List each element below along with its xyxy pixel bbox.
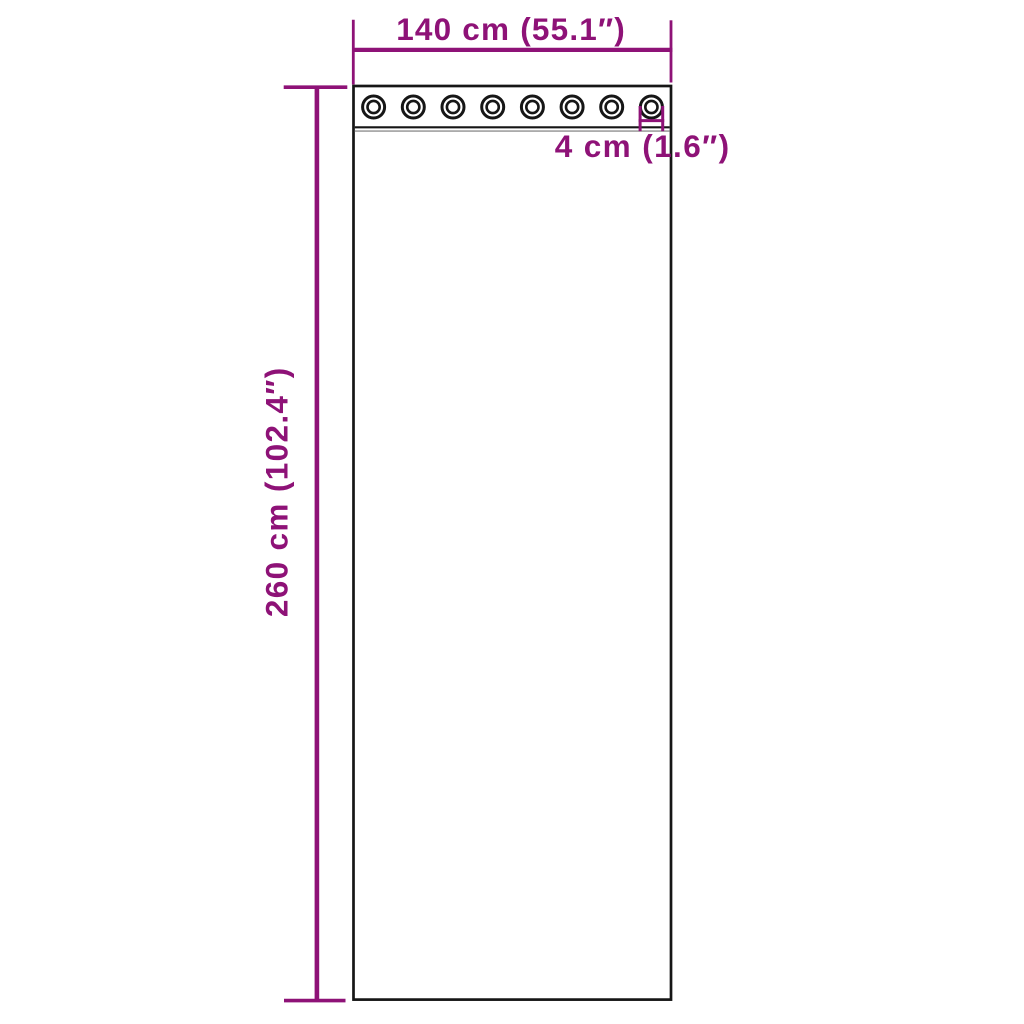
svg-text:140 cm (55.1″): 140 cm (55.1″): [396, 11, 626, 47]
svg-text:4 cm (1.6″): 4 cm (1.6″): [555, 128, 731, 164]
svg-text:260 cm (102.4″): 260 cm (102.4″): [258, 366, 294, 617]
